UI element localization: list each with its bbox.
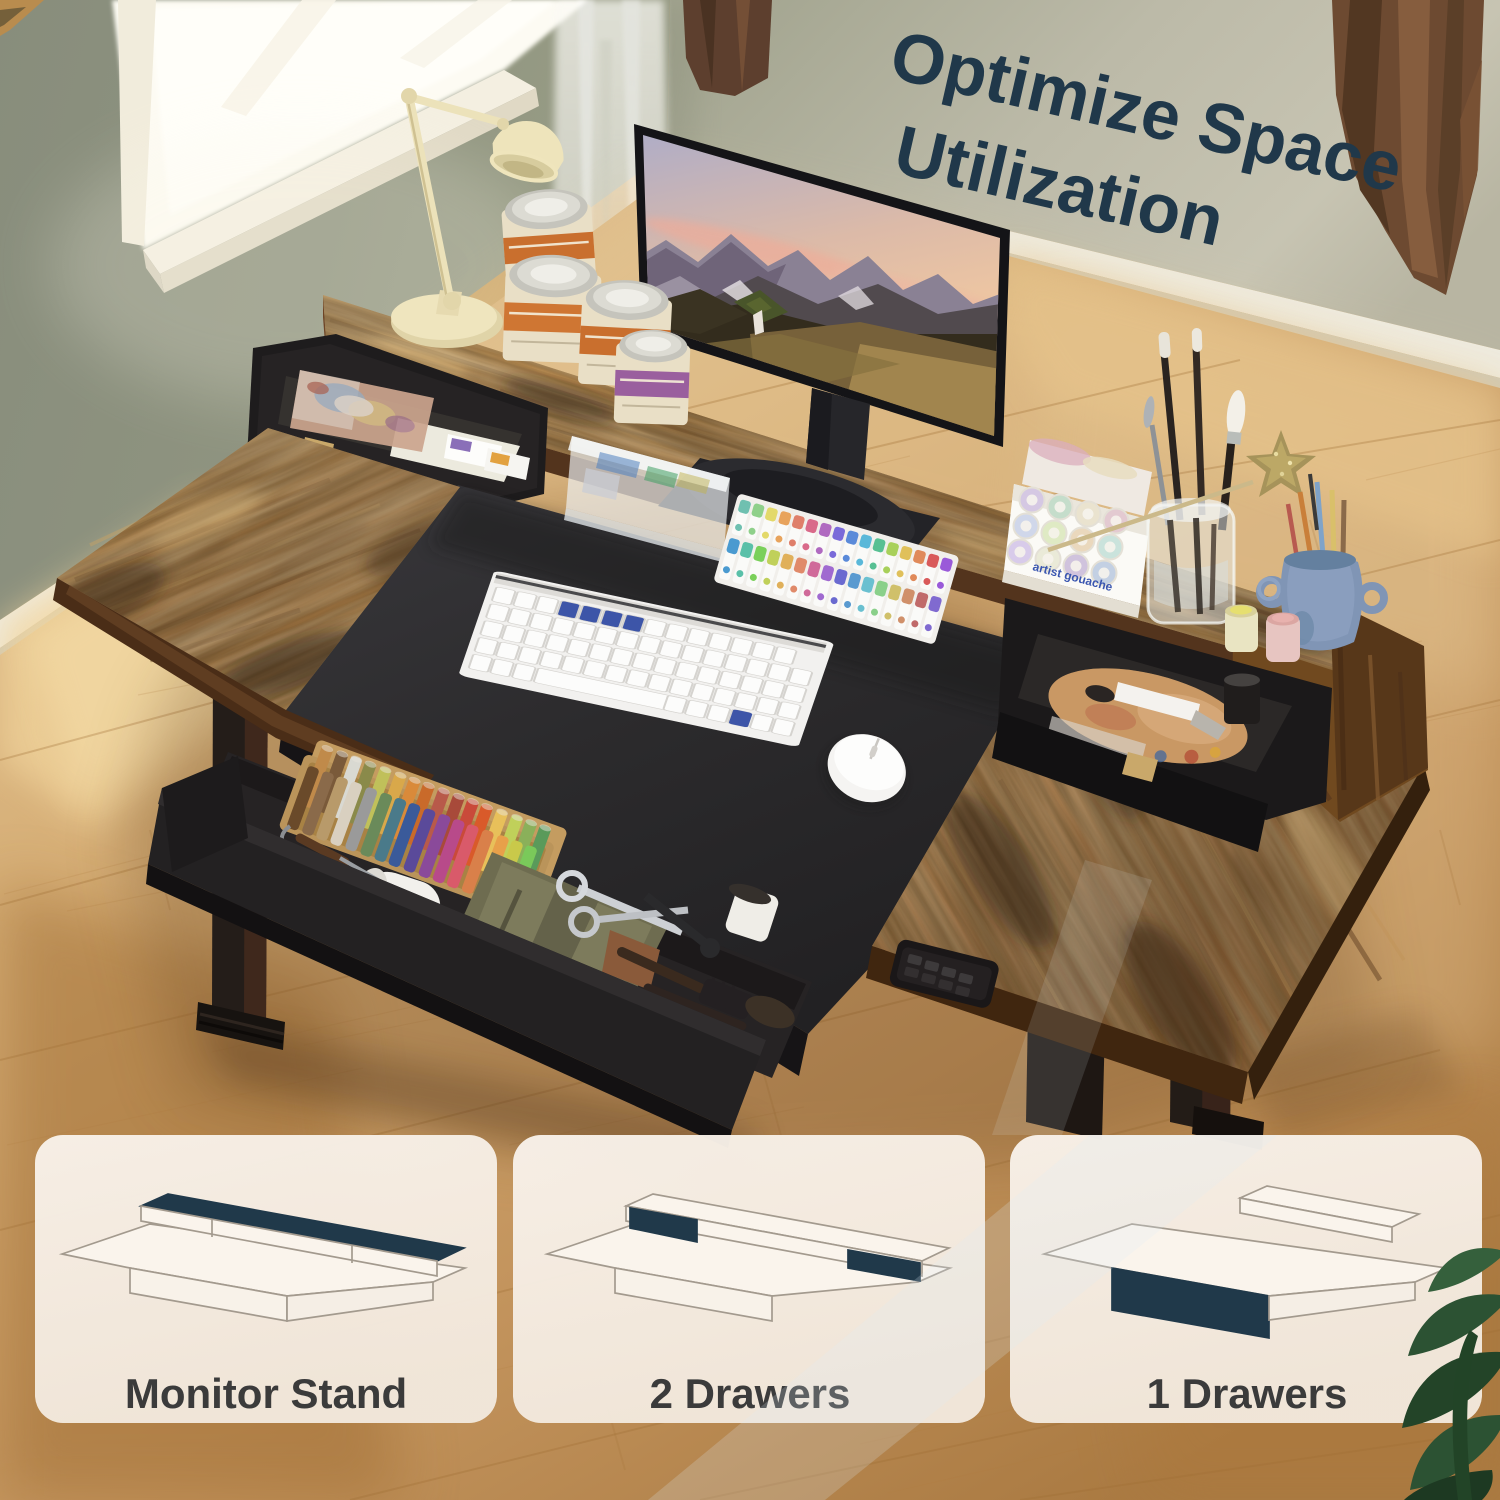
svg-text:Monitor Stand: Monitor Stand <box>125 1370 407 1417</box>
svg-text:1 Drawers: 1 Drawers <box>1147 1370 1348 1417</box>
